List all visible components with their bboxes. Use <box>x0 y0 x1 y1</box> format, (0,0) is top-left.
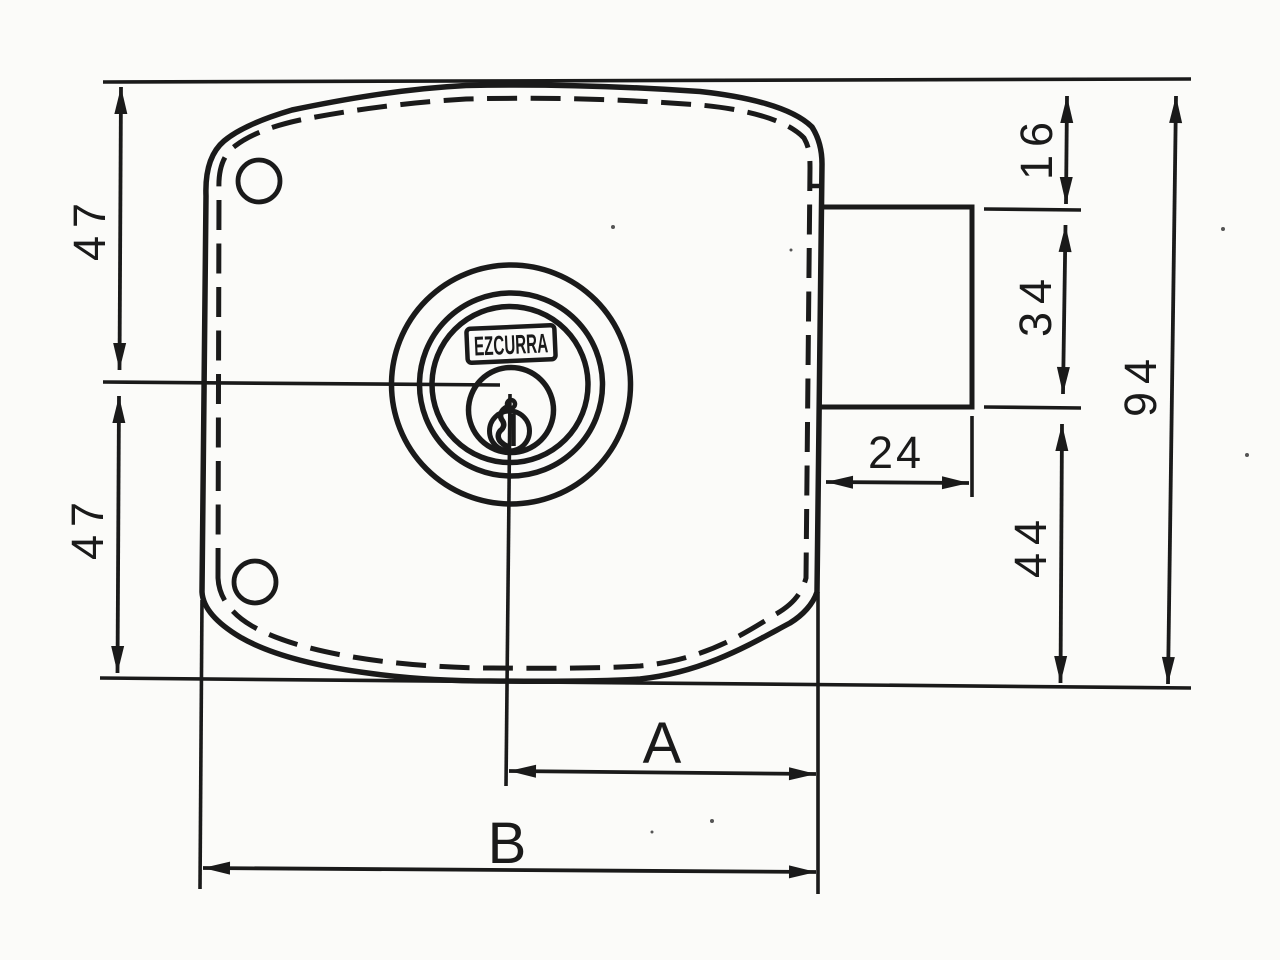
svg-text:24: 24 <box>868 427 924 478</box>
svg-text:94: 94 <box>1115 351 1166 417</box>
svg-text:EZCURRA: EZCURRA <box>473 328 548 361</box>
svg-text:44: 44 <box>1005 512 1056 578</box>
svg-text:16: 16 <box>1011 114 1062 180</box>
svg-text:47: 47 <box>62 494 113 560</box>
svg-text:34: 34 <box>1010 271 1061 337</box>
svg-text:A: A <box>643 711 682 776</box>
svg-text:47: 47 <box>64 195 115 261</box>
svg-text:B: B <box>488 811 527 876</box>
